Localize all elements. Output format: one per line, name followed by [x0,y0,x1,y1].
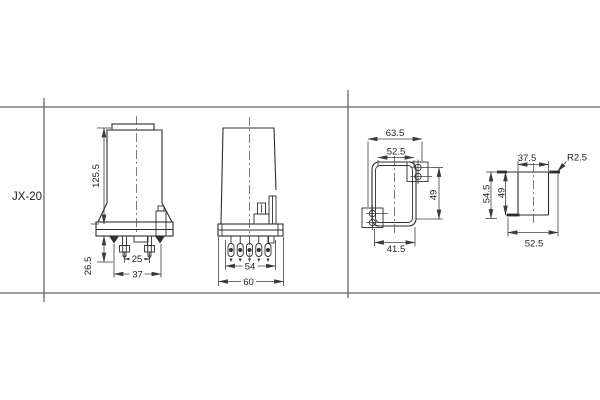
side-clamp-detail [254,196,276,224]
dim-front-stud-spacing: 25 [132,254,143,265]
front-flange [96,222,173,236]
dim-side-pin-span: 54 [245,262,256,273]
dim-panel-outer-height: 54.5 [481,185,492,204]
panel-side-view: 37.5 R2.5 54.5 49 52.5 [481,153,587,250]
dim-cutout-bottom-width: 41.5 [387,244,406,255]
model-label: JX-20 [12,191,42,203]
front-right-foot [155,236,165,244]
dim-cutout-height: 49 [428,190,439,201]
front-dimensions: 125.5 26.5 25 37 [83,128,161,280]
dim-cutout-inner-width: 52.5 [387,146,406,157]
cutout-outer-outline [372,162,416,226]
dim-panel-corner-radius: R2.5 [567,153,587,164]
dim-panel-inner-height: 49 [496,188,507,199]
cutout-dimensions: 63.5 52.5 49 41.5 [368,128,443,255]
panel-cutout-view: 63.5 52.5 49 41.5 [362,128,443,255]
dim-panel-bottom-width: 52.5 [525,239,544,250]
front-center-block [134,236,148,242]
panel-side-dimensions: 37.5 R2.5 54.5 49 52.5 [481,153,587,250]
front-clamp-screw [156,206,166,236]
side-view: 54 60 [218,117,284,288]
front-body-outline [98,130,172,222]
dimension-drawing: JX-20 [0,0,600,400]
dim-front-base-width: 37 [132,269,143,280]
dim-front-terminal-height: 26.5 [83,257,94,276]
side-latch-hook [269,236,275,243]
front-view: 125.5 26.5 25 37 [83,116,173,280]
front-top-cap [112,124,154,130]
cutout-top-right-tab [407,160,432,185]
side-body-outline [221,128,276,224]
technical-drawing-page: JX-20 [0,0,600,400]
front-left-foot [109,236,119,244]
dim-panel-top-width: 37.5 [518,153,537,164]
dim-front-height: 125.5 [91,164,102,188]
dim-side-overall-width: 60 [243,277,254,288]
dim-cutout-outer-width: 63.5 [386,128,405,139]
